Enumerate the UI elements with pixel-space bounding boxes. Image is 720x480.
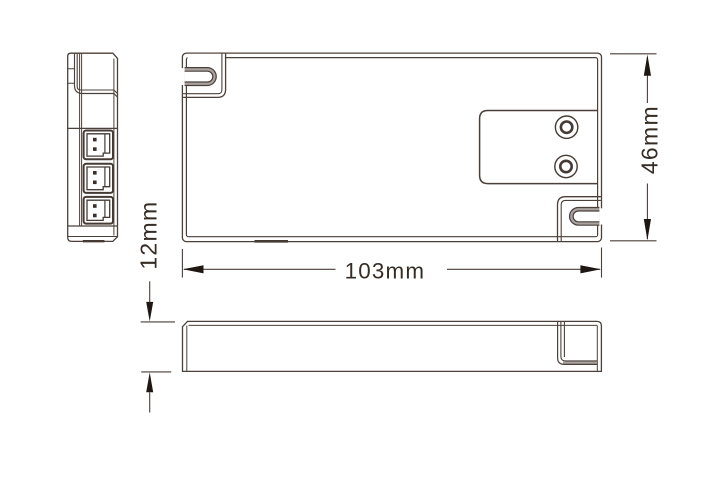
svg-text:12mm: 12mm (136, 201, 162, 270)
svg-text:103mm: 103mm (345, 258, 426, 283)
svg-text:46mm: 46mm (636, 105, 662, 174)
